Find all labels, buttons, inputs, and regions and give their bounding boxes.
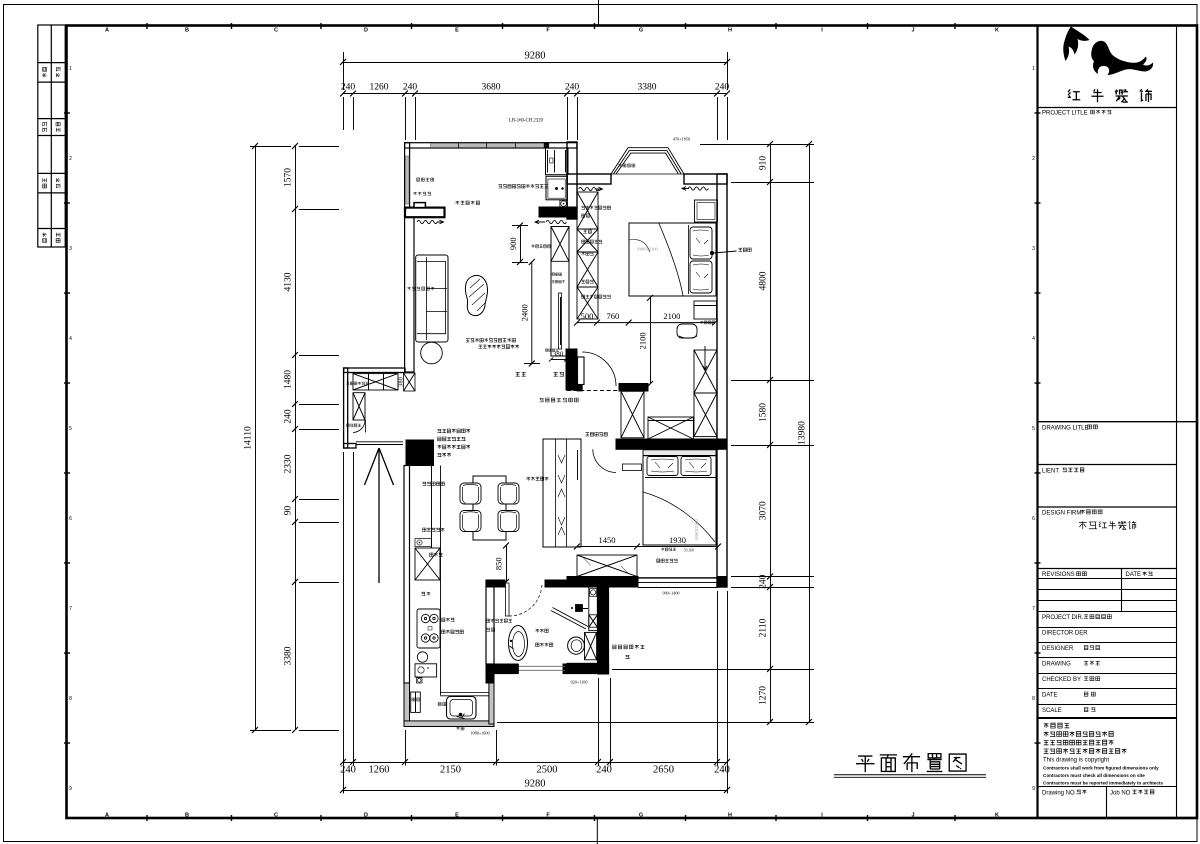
svg-text:Contractors shall work from fi: Contractors shall work from figured dime… (1043, 766, 1159, 771)
svg-text:3380: 3380 (638, 83, 657, 93)
svg-text:2650: 2650 (653, 765, 674, 776)
svg-text:LB-160-CH 2320: LB-160-CH 2320 (509, 119, 544, 124)
svg-text:G: G (639, 28, 643, 34)
svg-text:Contractors must check all dim: Contractors must check all dimensions on… (1043, 773, 1145, 778)
svg-text:1: 1 (1032, 66, 1035, 72)
svg-text:Drawing NO: Drawing NO (1042, 791, 1075, 797)
svg-text:1930: 1930 (669, 535, 686, 545)
svg-text:8: 8 (69, 696, 72, 702)
svg-text:DESIGNER: DESIGNER (1042, 646, 1074, 652)
svg-text:J: J (911, 813, 914, 819)
svg-text:9280: 9280 (525, 779, 546, 790)
svg-text:E: E (455, 28, 459, 34)
svg-text:500: 500 (581, 311, 594, 321)
svg-text:850: 850 (494, 557, 504, 570)
svg-text:240: 240 (284, 409, 294, 424)
svg-text:5: 5 (69, 426, 72, 432)
svg-text:900: 900 (508, 237, 518, 250)
svg-text:A: A (105, 813, 109, 819)
svg-text:14110: 14110 (244, 426, 254, 450)
svg-text:4: 4 (1032, 336, 1035, 342)
svg-text:13980: 13980 (798, 421, 808, 445)
svg-text:D: D (364, 28, 368, 34)
svg-text:920+1100: 920+1100 (571, 680, 588, 685)
svg-text:2400: 2400 (519, 304, 529, 321)
svg-text:4130: 4130 (284, 272, 294, 291)
svg-text:240: 240 (565, 83, 580, 93)
svg-text:4800: 4800 (759, 271, 769, 290)
svg-text:760: 760 (606, 311, 619, 321)
svg-text:2330: 2330 (284, 454, 294, 473)
svg-text:DESIGN FIRM: DESIGN FIRM (1042, 511, 1081, 517)
svg-text:9: 9 (1032, 786, 1035, 792)
svg-text:1080+1600: 1080+1600 (470, 731, 489, 736)
svg-text:4: 4 (69, 336, 72, 342)
svg-text:1800X2100: 1800X2100 (636, 247, 658, 252)
svg-text:REVISIONS: REVISIONS (1042, 572, 1075, 578)
svg-text:Contractors must be reported i: Contractors must be reported immediately… (1043, 781, 1163, 786)
svg-text:1270: 1270 (759, 686, 769, 705)
svg-text:2100: 2100 (638, 332, 648, 349)
svg-text:50.300: 50.300 (684, 549, 695, 553)
svg-text:470+1850: 470+1850 (673, 137, 690, 142)
svg-text:DIRECTOR DER: DIRECTOR DER (1042, 631, 1088, 637)
svg-text:PROJECT LITLE: PROJECT LITLE (1042, 111, 1088, 117)
svg-text:H: H (728, 28, 732, 34)
svg-text:1570: 1570 (284, 168, 294, 187)
svg-text:DRAWING LITLE: DRAWING LITLE (1042, 426, 1088, 432)
svg-text:3: 3 (69, 246, 72, 252)
svg-text:1260: 1260 (370, 83, 389, 93)
svg-text:380: 380 (553, 351, 564, 359)
svg-text:PROJECT DIR.: PROJECT DIR. (1042, 615, 1084, 621)
svg-text:1260: 1260 (369, 765, 390, 776)
svg-text:DRAWING: DRAWING (1042, 662, 1071, 668)
svg-text:K: K (995, 813, 999, 819)
svg-text:7: 7 (69, 606, 72, 612)
svg-text:C: C (274, 813, 278, 819)
svg-text:1450: 1450 (599, 535, 616, 545)
svg-text:DATE: DATE (1126, 572, 1142, 578)
svg-text:K: K (995, 28, 999, 34)
svg-text:240: 240 (403, 83, 418, 93)
svg-text:900+1400: 900+1400 (662, 591, 679, 596)
svg-text:This drawing is copyright: This drawing is copyright (1043, 758, 1109, 764)
svg-text:9280: 9280 (525, 51, 546, 62)
svg-text:B: B (185, 28, 189, 34)
svg-text:3380: 3380 (284, 646, 294, 665)
svg-text:2110: 2110 (759, 618, 769, 637)
svg-text:240: 240 (596, 765, 612, 776)
svg-text:3: 3 (1032, 246, 1035, 252)
svg-text:DATE: DATE (1042, 693, 1058, 699)
svg-text:2100: 2100 (663, 311, 680, 321)
svg-text:A: A (105, 28, 109, 34)
svg-text:G: G (639, 813, 643, 819)
svg-text:1580: 1580 (759, 403, 769, 422)
svg-text:1: 1 (69, 66, 72, 72)
svg-text:90: 90 (284, 506, 294, 516)
svg-text:2: 2 (69, 156, 72, 162)
svg-text:9: 9 (69, 786, 72, 792)
svg-text:8: 8 (1032, 696, 1035, 702)
svg-text:B: B (185, 813, 189, 819)
svg-text:H: H (728, 813, 732, 819)
svg-text:2150: 2150 (440, 765, 461, 776)
svg-text:E: E (455, 813, 459, 819)
svg-text:3680: 3680 (482, 83, 501, 93)
svg-text:380: 380 (398, 377, 405, 387)
svg-text:2: 2 (1032, 156, 1035, 162)
svg-text:Job NO: Job NO (1110, 791, 1131, 797)
svg-text:7: 7 (1032, 606, 1035, 612)
svg-text:6: 6 (69, 516, 72, 522)
svg-text:1800X2100: 1800X2100 (694, 518, 699, 540)
svg-text:J: J (911, 28, 914, 34)
svg-text:SCALE: SCALE (1042, 708, 1062, 714)
svg-text:1480: 1480 (284, 370, 294, 389)
svg-text:240: 240 (340, 765, 356, 776)
svg-text:D: D (364, 813, 368, 819)
svg-text:6: 6 (1032, 516, 1035, 522)
svg-text:2500: 2500 (537, 765, 558, 776)
svg-text:C: C (274, 28, 278, 34)
svg-text:3070: 3070 (759, 501, 769, 520)
svg-text:LIENT: LIENT (1042, 469, 1059, 475)
svg-text:5: 5 (1032, 426, 1035, 432)
svg-text:CHECKED BY: CHECKED BY (1042, 677, 1081, 683)
svg-text:910: 910 (759, 156, 769, 171)
